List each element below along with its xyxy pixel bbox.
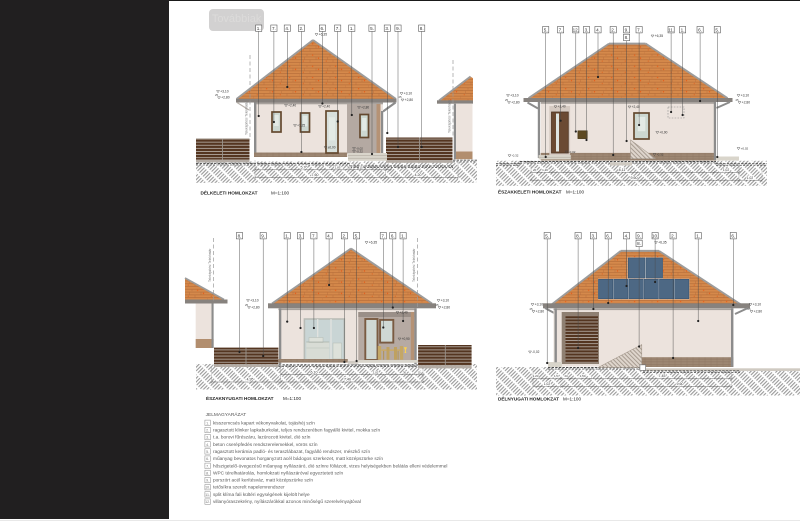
- svg-text:5.: 5.: [544, 27, 548, 32]
- svg-text:1,02: 1,02: [747, 176, 753, 180]
- svg-text:3.: 3.: [585, 27, 589, 32]
- svg-text:beton cserépfedés rendszerelem: beton cserépfedés rendszerelemekkel, vör…: [213, 442, 318, 448]
- svg-text:7,45: 7,45: [659, 374, 666, 378]
- svg-text:25: 25: [399, 95, 403, 99]
- svg-text:1.: 1.: [681, 27, 685, 32]
- svg-text:-0,02: -0,02: [569, 150, 576, 154]
- svg-text:+3,10: +3,10: [220, 89, 229, 93]
- svg-text:20: 20: [533, 168, 537, 172]
- svg-text:1.: 1.: [401, 233, 405, 238]
- svg-text:+3,10: +3,10: [441, 298, 450, 302]
- svg-text:10.: 10.: [652, 233, 658, 238]
- svg-text:WPC térelhatárolás, homlokzati: WPC térelhatárolás, homlokzati nyílászár…: [213, 470, 344, 476]
- svg-text:3.: 3.: [206, 436, 209, 440]
- svg-text:4.: 4.: [596, 27, 600, 32]
- svg-text:5.: 5.: [715, 27, 719, 32]
- svg-text:1,02: 1,02: [544, 382, 550, 386]
- svg-text:+3,10: +3,10: [404, 91, 413, 95]
- svg-text:8.: 8.: [576, 233, 580, 238]
- svg-text:9.: 9.: [261, 233, 265, 238]
- svg-text:+3,10: +3,10: [510, 93, 519, 97]
- svg-text:+2,80: +2,80: [221, 96, 230, 100]
- svg-text:7.: 7.: [206, 464, 209, 468]
- svg-text:-0,32: -0,32: [356, 149, 363, 153]
- svg-text:ragasztott kerámia padló- és t: ragasztott kerámia padló- és teraszlábaz…: [213, 449, 370, 455]
- svg-text:M=1:100: M=1:100: [563, 396, 581, 401]
- svg-text:4,95: 4,95: [247, 378, 254, 382]
- svg-text:2.: 2.: [671, 233, 675, 238]
- svg-text:±0,00: ±0,00: [328, 145, 336, 149]
- svg-text:1,20: 1,20: [542, 168, 548, 172]
- svg-text:+2,80: +2,80: [754, 309, 763, 313]
- svg-text:műanyag bevonatos horganyzott: műanyag bevonatos horganyzott acél bádog…: [213, 456, 383, 462]
- svg-text:t.a. borovi fűrészáru, lazúroz: t.a. borovi fűrészáru, lazúrozott kivite…: [213, 435, 311, 441]
- svg-text:4.: 4.: [206, 443, 209, 447]
- svg-text:5.: 5.: [206, 450, 209, 454]
- svg-text:tetősíkra szerelt napelemrends: tetősíkra szerelt napelemrendszer: [213, 485, 285, 491]
- svg-text:7.: 7.: [637, 27, 641, 32]
- svg-text:9,60: 9,60: [677, 382, 684, 386]
- svg-text:-0,02: -0,02: [532, 350, 539, 354]
- svg-text:2,02: 2,02: [373, 370, 379, 374]
- svg-text:1.: 1.: [206, 421, 209, 425]
- svg-text:25: 25: [245, 303, 249, 307]
- svg-text:30: 30: [347, 166, 351, 170]
- svg-text:7.: 7.: [312, 233, 316, 238]
- svg-text:6.: 6.: [606, 233, 610, 238]
- svg-text:+3,10: +3,10: [250, 298, 259, 302]
- svg-text:7.: 7.: [272, 26, 276, 31]
- svg-text:4.: 4.: [327, 233, 331, 238]
- svg-text:+6,35: +6,35: [369, 240, 378, 244]
- svg-text:+2,80: +2,80: [536, 309, 545, 313]
- svg-text:6,10: 6,10: [311, 370, 318, 374]
- svg-text:kisszemcsés kapart vékonyvakol: kisszemcsés kapart vékonyvakolat, tojásh…: [213, 420, 315, 426]
- svg-text:+2,80: +2,80: [442, 305, 451, 309]
- svg-text:2.: 2.: [342, 233, 346, 238]
- svg-text:+2,40: +2,40: [632, 105, 640, 109]
- svg-text:15: 15: [417, 371, 421, 375]
- svg-text:25: 25: [436, 303, 440, 307]
- svg-text:1.: 1.: [696, 233, 700, 238]
- svg-text:5,70: 5,70: [301, 166, 308, 170]
- svg-text:2.: 2.: [206, 429, 209, 433]
- svg-text:6.: 6.: [731, 233, 735, 238]
- svg-text:25: 25: [215, 93, 219, 97]
- svg-text:4.: 4.: [285, 26, 289, 31]
- svg-text:1,02: 1,02: [723, 168, 729, 172]
- svg-text:M=1:100: M=1:100: [283, 396, 301, 401]
- svg-text:8.: 8.: [238, 233, 242, 238]
- svg-text:6.: 6.: [698, 27, 702, 32]
- svg-text:1.: 1.: [350, 26, 354, 31]
- svg-text:25: 25: [530, 307, 534, 311]
- svg-text:+2,40: +2,40: [288, 103, 296, 107]
- svg-text:12.: 12.: [573, 27, 579, 32]
- svg-text:split klíma fali kültéri egysé: split klíma fali kültéri egységének kije…: [213, 492, 310, 498]
- svg-text:3.: 3.: [299, 233, 303, 238]
- svg-text:25: 25: [736, 98, 740, 102]
- svg-text:-0,32: -0,32: [512, 154, 519, 158]
- svg-text:M=1:100: M=1:100: [271, 190, 289, 195]
- svg-text:12.: 12.: [205, 500, 210, 504]
- svg-text:3.: 3.: [385, 26, 389, 31]
- svg-text:1,20: 1,20: [533, 374, 539, 378]
- svg-text:+0,90: +0,90: [659, 130, 667, 134]
- svg-text:+6,35: +6,35: [655, 34, 664, 38]
- svg-text:+0,02: +0,02: [741, 146, 749, 150]
- svg-text:Teleképítési Telekhatár: Teleképítési Telekhatár: [448, 99, 452, 133]
- svg-text:Teleképítési Telekhatár: Teleképítési Telekhatár: [412, 248, 416, 282]
- svg-text:9.: 9.: [637, 233, 641, 238]
- svg-text:8.: 8.: [206, 471, 209, 475]
- svg-text:ragasztott klinker lapkaburkol: ragasztott klinker lapkaburkolat, teljes…: [213, 428, 380, 434]
- svg-text:1,50: 1,50: [580, 374, 586, 378]
- svg-text:30: 30: [403, 371, 407, 375]
- svg-text:4,20: 4,20: [415, 173, 422, 177]
- svg-text:5.: 5.: [545, 233, 549, 238]
- svg-text:+6,35: +6,35: [319, 32, 328, 36]
- svg-text:1,85: 1,85: [335, 166, 341, 170]
- svg-text:2.: 2.: [611, 27, 615, 32]
- svg-text:+3,10: +3,10: [535, 302, 544, 306]
- svg-text:20: 20: [565, 374, 569, 378]
- svg-text:porszórt acél kerítésváz, matt: porszórt acél kerítésváz, matt középszür…: [213, 478, 313, 484]
- svg-text:+2,40: +2,40: [558, 105, 566, 109]
- svg-text:9.: 9.: [625, 27, 629, 32]
- svg-text:hőszigetelő-üvegezésű műanyag: hőszigetelő-üvegezésű műanyag nyílászáró…: [213, 463, 447, 469]
- svg-text:+3,10: +3,10: [753, 302, 762, 306]
- svg-text:25: 25: [748, 307, 752, 311]
- svg-text:+2,80: +2,80: [742, 100, 751, 104]
- svg-text:8.: 8.: [637, 241, 641, 246]
- svg-text:7.: 7.: [559, 27, 563, 32]
- svg-text:+2,40: +2,40: [400, 310, 408, 314]
- svg-text:DÉLKELETI HOMLOKZAT: DÉLKELETI HOMLOKZAT: [201, 188, 258, 195]
- svg-text:8,11: 8,11: [619, 168, 626, 172]
- svg-text:10.: 10.: [205, 486, 210, 490]
- svg-text:9.: 9.: [206, 479, 209, 483]
- svg-text:15: 15: [359, 166, 363, 170]
- svg-text:JELMAGYARÁZAT: JELMAGYARÁZAT: [206, 411, 247, 418]
- svg-text:1.: 1.: [285, 233, 289, 238]
- svg-text:25: 25: [505, 98, 509, 102]
- svg-text:Teleképítési Telekhatár: Teleképítési Telekhatár: [245, 101, 249, 135]
- svg-text:villanyóraszekrény, nyílászáró: villanyóraszekrény, nyílászárókkal azono…: [213, 499, 361, 505]
- svg-text:6.: 6.: [320, 26, 324, 31]
- svg-text:5.: 5.: [370, 26, 374, 31]
- svg-text:4.: 4.: [625, 233, 629, 238]
- svg-text:+0,90: +0,90: [402, 337, 410, 341]
- svg-text:5.: 5.: [355, 233, 359, 238]
- svg-text:+2,80: +2,80: [405, 98, 414, 102]
- svg-text:6.: 6.: [206, 457, 209, 461]
- svg-text:11.: 11.: [205, 493, 210, 497]
- svg-text:1.: 1.: [257, 26, 261, 31]
- svg-text:+2,80: +2,80: [251, 305, 260, 309]
- svg-text:9,60: 9,60: [631, 176, 638, 180]
- svg-text:3.: 3.: [591, 233, 595, 238]
- svg-text:+6,35: +6,35: [658, 240, 667, 244]
- svg-text:+2,80: +2,80: [361, 105, 369, 109]
- svg-text:7.: 7.: [336, 26, 340, 31]
- svg-text:8.: 8.: [625, 35, 629, 40]
- svg-text:7,40: 7,40: [344, 378, 351, 382]
- svg-text:9.: 9.: [396, 26, 400, 31]
- svg-text:+2,80: +2,80: [511, 100, 520, 104]
- svg-text:+2,40: +2,40: [322, 104, 330, 108]
- svg-text:11.: 11.: [668, 27, 674, 32]
- svg-text:ÉSZAKKELETI HOMLOKZAT: ÉSZAKKELETI HOMLOKZAT: [498, 188, 562, 195]
- svg-text:DÉLNYUGATI HOMLOKZAT: DÉLNYUGATI HOMLOKZAT: [498, 394, 559, 401]
- svg-text:1,5: 1,5: [554, 374, 558, 378]
- svg-text:+1,25: +1,25: [297, 123, 305, 127]
- svg-text:ÉSZAKNYUGATI HOMLOKZAT: ÉSZAKNYUGATI HOMLOKZAT: [206, 394, 274, 401]
- svg-text:8.: 8.: [420, 26, 424, 31]
- svg-text:-0,32: -0,32: [657, 152, 664, 156]
- svg-text:2.: 2.: [299, 26, 303, 31]
- svg-text:M=1:100: M=1:100: [566, 190, 584, 195]
- svg-text:+3,10: +3,10: [741, 93, 750, 97]
- svg-text:6.: 6.: [391, 233, 395, 238]
- svg-text:Teleképítési Telekhatár: Teleképítési Telekhatár: [208, 248, 212, 282]
- svg-text:7,60: 7,60: [312, 173, 319, 177]
- svg-text:7.: 7.: [381, 233, 385, 238]
